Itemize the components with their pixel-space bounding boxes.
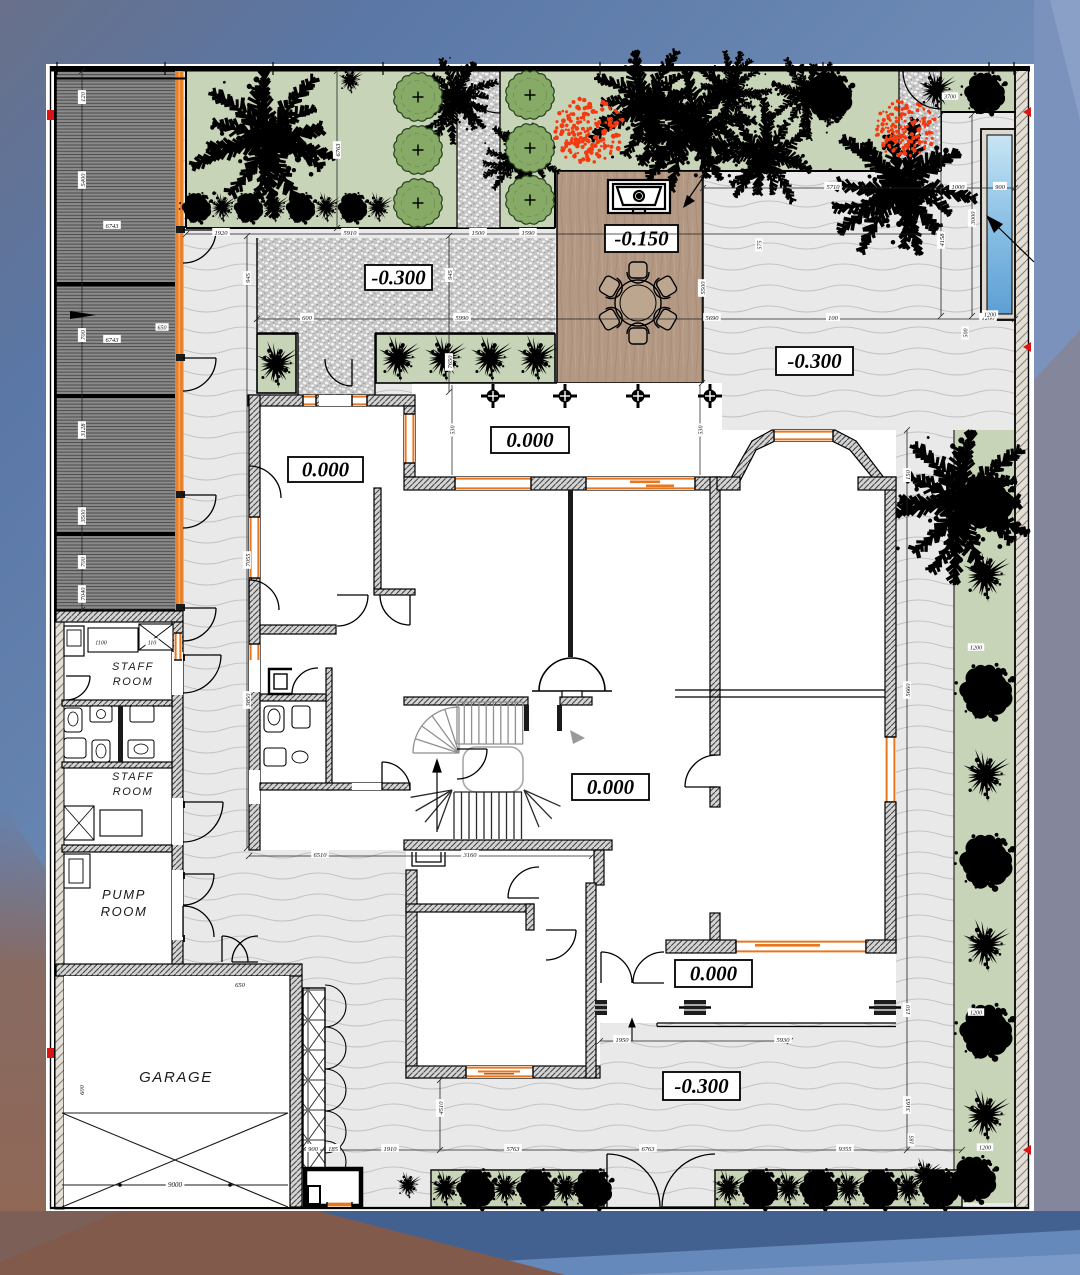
svg-text:3000: 3000 (970, 211, 977, 226)
svg-text:700: 700 (80, 329, 87, 340)
svg-text:1200: 1200 (970, 646, 982, 652)
svg-text:5400: 5400 (80, 173, 87, 187)
svg-text:ROOM: ROOM (101, 904, 148, 919)
svg-text:4158: 4158 (939, 233, 946, 247)
svg-text:1910: 1910 (384, 1146, 398, 1153)
svg-text:900: 900 (308, 1146, 319, 1153)
svg-text:185: 185 (910, 1136, 916, 1145)
svg-text:6763: 6763 (642, 1146, 656, 1153)
svg-text:120: 120 (80, 91, 87, 102)
svg-text:5930: 5930 (777, 1037, 791, 1044)
svg-text:150: 150 (905, 469, 912, 480)
svg-text:530: 530 (699, 426, 705, 435)
svg-text:1000: 1000 (952, 184, 966, 191)
svg-text:530: 530 (451, 426, 457, 435)
svg-text:3850: 3850 (245, 693, 252, 708)
svg-text:3160: 3160 (463, 852, 478, 859)
svg-text:5910: 5910 (344, 230, 358, 237)
svg-text:9355: 9355 (839, 1146, 853, 1153)
svg-text:575: 575 (758, 241, 764, 250)
svg-text:6743: 6743 (106, 337, 120, 344)
svg-text:STAFF: STAFF (112, 771, 154, 783)
svg-text:3700: 3700 (943, 95, 956, 101)
svg-text:6763: 6763 (335, 143, 342, 157)
svg-text:945: 945 (245, 272, 252, 283)
svg-text:5763: 5763 (507, 1146, 521, 1153)
svg-text:600: 600 (79, 1084, 86, 1095)
svg-text:-0.300: -0.300 (371, 266, 426, 290)
svg-text:600: 600 (302, 315, 313, 322)
svg-text:100: 100 (828, 315, 839, 322)
svg-text:650: 650 (235, 982, 246, 989)
svg-text:7040: 7040 (80, 587, 87, 601)
svg-text:ROOM: ROOM (113, 786, 154, 798)
svg-text:-0.150: -0.150 (614, 227, 669, 251)
svg-text:650: 650 (158, 326, 167, 332)
svg-text:150: 150 (905, 1004, 912, 1015)
svg-text:5690: 5690 (706, 315, 720, 322)
svg-text:900: 900 (995, 184, 1006, 191)
svg-text:-0.300: -0.300 (674, 1074, 729, 1098)
svg-text:3128: 3128 (80, 423, 87, 438)
svg-text:3500: 3500 (80, 509, 87, 524)
svg-text:1200: 1200 (970, 1011, 982, 1017)
svg-text:0.000: 0.000 (587, 775, 635, 799)
svg-text:1200: 1200 (984, 313, 996, 319)
svg-text:GARAGE: GARAGE (139, 1069, 213, 1086)
svg-text:1590: 1590 (522, 230, 536, 237)
svg-text:5990: 5990 (456, 315, 470, 322)
svg-text:3165: 3165 (905, 1098, 912, 1113)
svg-text:ROOM: ROOM (113, 676, 154, 688)
svg-text:0.000: 0.000 (302, 458, 350, 482)
svg-text:1100: 1100 (95, 641, 107, 647)
svg-text:6743: 6743 (106, 223, 120, 230)
svg-text:9000: 9000 (168, 1181, 183, 1189)
svg-text:700: 700 (80, 556, 87, 567)
svg-text:STAFF: STAFF (112, 661, 154, 673)
svg-text:1500: 1500 (472, 230, 486, 237)
svg-text:945: 945 (447, 269, 454, 280)
svg-text:0.000: 0.000 (690, 962, 738, 986)
svg-text:7055: 7055 (245, 553, 252, 567)
svg-text:1920: 1920 (215, 230, 229, 237)
svg-text:1950: 1950 (616, 1037, 630, 1044)
svg-text:5500: 5500 (700, 281, 707, 295)
svg-text:7650: 7650 (447, 355, 454, 369)
svg-text:6510: 6510 (314, 852, 328, 859)
svg-text:5710: 5710 (827, 184, 841, 191)
svg-text:110: 110 (148, 641, 157, 647)
svg-text:-0.300: -0.300 (787, 349, 842, 373)
svg-text:500: 500 (964, 329, 970, 338)
svg-text:0.000: 0.000 (506, 428, 554, 452)
svg-text:5660: 5660 (905, 683, 912, 697)
svg-text:PUMP: PUMP (102, 887, 146, 902)
svg-text:185: 185 (328, 1146, 339, 1153)
svg-text:4510: 4510 (438, 1101, 445, 1115)
svg-text:1200: 1200 (979, 1146, 991, 1152)
